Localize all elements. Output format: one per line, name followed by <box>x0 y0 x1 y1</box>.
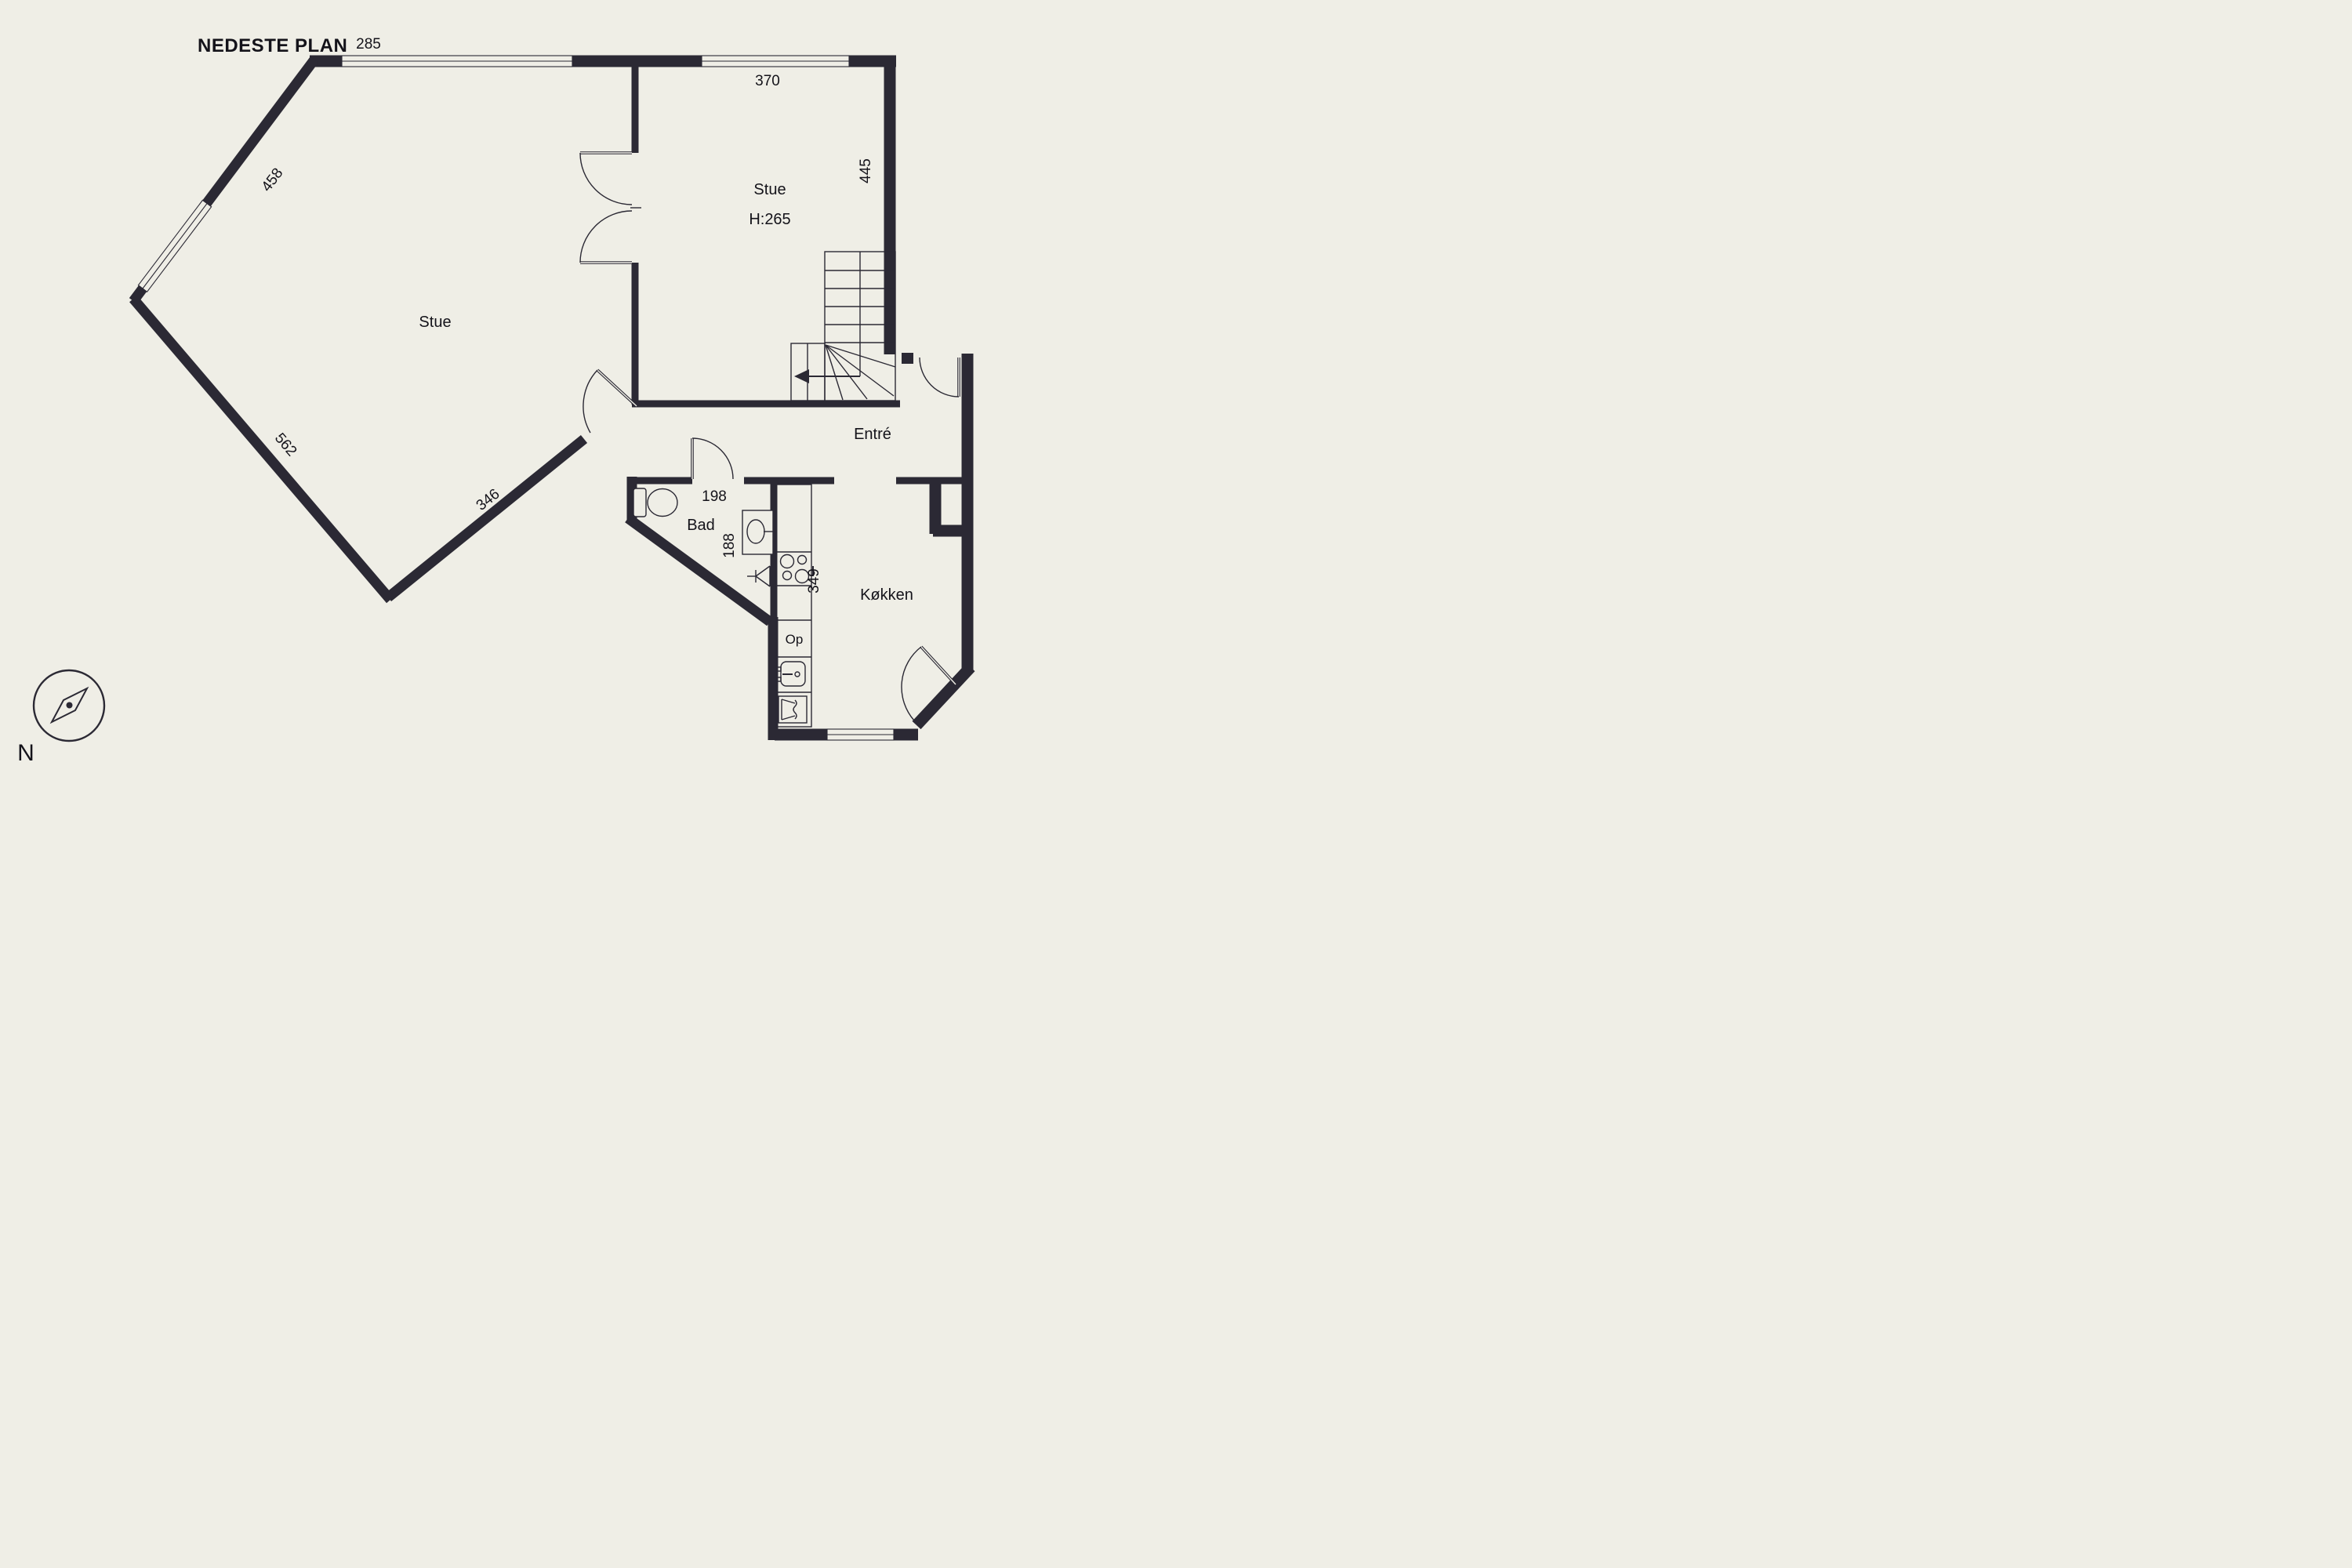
windows <box>138 56 894 740</box>
dim-sw-wall: 562 <box>271 430 300 460</box>
kitchen-fixtures <box>776 485 813 727</box>
stue-door <box>583 370 637 433</box>
wall-346 <box>388 439 584 597</box>
dim-bad-depth: 188 <box>721 533 738 558</box>
plan-title: NEDESTE PLAN <box>198 35 347 56</box>
toilet-icon <box>633 488 677 517</box>
bathroom-sink-icon <box>742 510 775 554</box>
shower-icon <box>747 566 770 586</box>
double-door <box>580 153 641 263</box>
dim-bad-width: 198 <box>702 488 727 505</box>
room-label-stue-height: H:265 <box>749 211 790 228</box>
dim-kitchen-wall: 349 <box>806 568 822 593</box>
window-370 <box>702 56 849 67</box>
entrance-door <box>920 358 959 397</box>
dishwasher-icon <box>779 696 807 723</box>
room-label-stue-upper: Stue <box>753 181 786 198</box>
exterior-walls <box>133 56 973 740</box>
kitchen-counter <box>776 485 811 727</box>
room-label-kitchen: Køkken <box>860 586 913 604</box>
dim-right-wall: 445 <box>858 158 874 183</box>
room-label-entre: Entré <box>854 426 891 443</box>
window-285 <box>342 56 572 67</box>
dim-top-window: 285 <box>356 36 381 53</box>
wall-kitchen-corner-cut <box>916 667 971 725</box>
compass-north-label: N <box>17 740 34 766</box>
kitchen-sink-icon <box>777 662 805 686</box>
wall-562 <box>133 299 390 600</box>
floorplan-drawing: N NEDESTE PLAN Stue Stue H:265 Entré Bad… <box>0 0 1176 784</box>
stairs <box>791 252 895 401</box>
compass-icon: N <box>17 670 104 766</box>
dim-nw-wall: 458 <box>259 165 287 195</box>
dim-upper-right-window: 370 <box>755 73 780 89</box>
stairs-up-label: Op <box>786 632 804 647</box>
floorplan-page: N NEDESTE PLAN Stue Stue H:265 Entré Bad… <box>0 0 1176 784</box>
bad-door <box>692 438 733 479</box>
window-458 <box>138 200 211 292</box>
window-kitchen <box>827 729 894 740</box>
room-label-stue-main: Stue <box>419 314 451 331</box>
labels: NEDESTE PLAN Stue Stue H:265 Entré Bad K… <box>198 35 913 647</box>
room-label-bad: Bad <box>687 517 715 534</box>
entrance-jamb <box>902 353 913 364</box>
stairs-arrow-icon <box>794 369 809 383</box>
